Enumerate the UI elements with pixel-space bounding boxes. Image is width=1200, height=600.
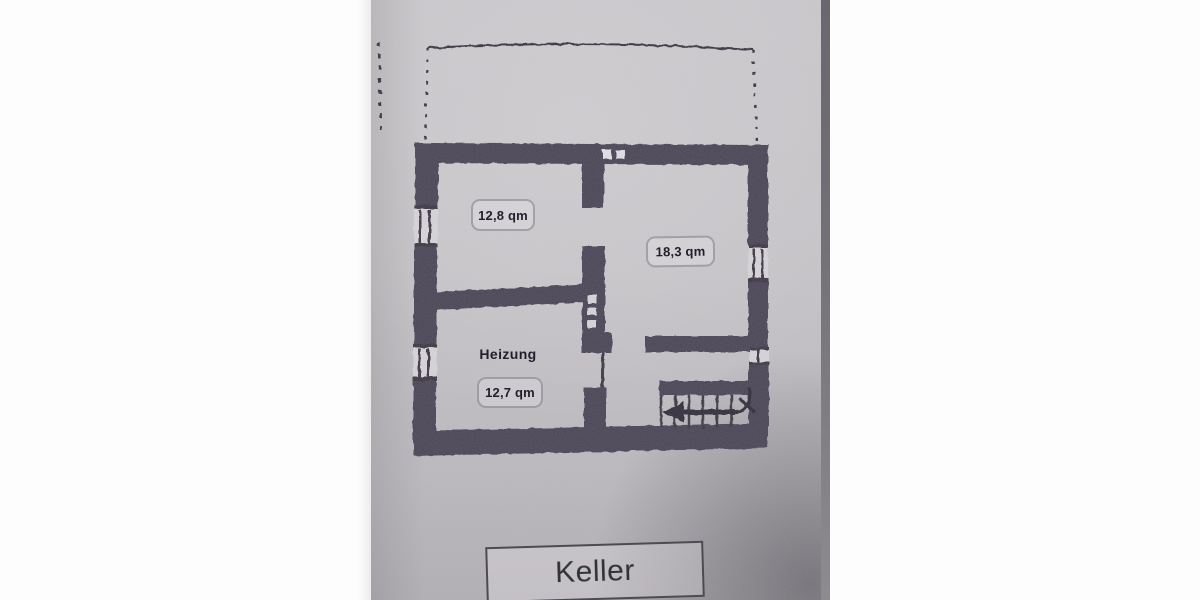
room-name-label: Heizung — [462, 346, 554, 362]
screenshot-canvas: 12,8 qm 18,3 qm Heizung 12,7 qm Keller — [0, 0, 1200, 600]
floor-caption: Keller — [555, 554, 636, 590]
floor-caption-box: Keller — [485, 541, 705, 600]
photo-grain-overlay — [371, 0, 821, 600]
floor-plan-layer: 12,8 qm 18,3 qm Heizung 12,7 qm — [0, 0, 1200, 600]
room-area-label: 18,3 qm — [646, 236, 715, 268]
room-area-label: 12,7 qm — [477, 377, 543, 408]
floor-plan-drawing — [0, 0, 1200, 600]
room-area-label: 12,8 qm — [471, 199, 535, 231]
